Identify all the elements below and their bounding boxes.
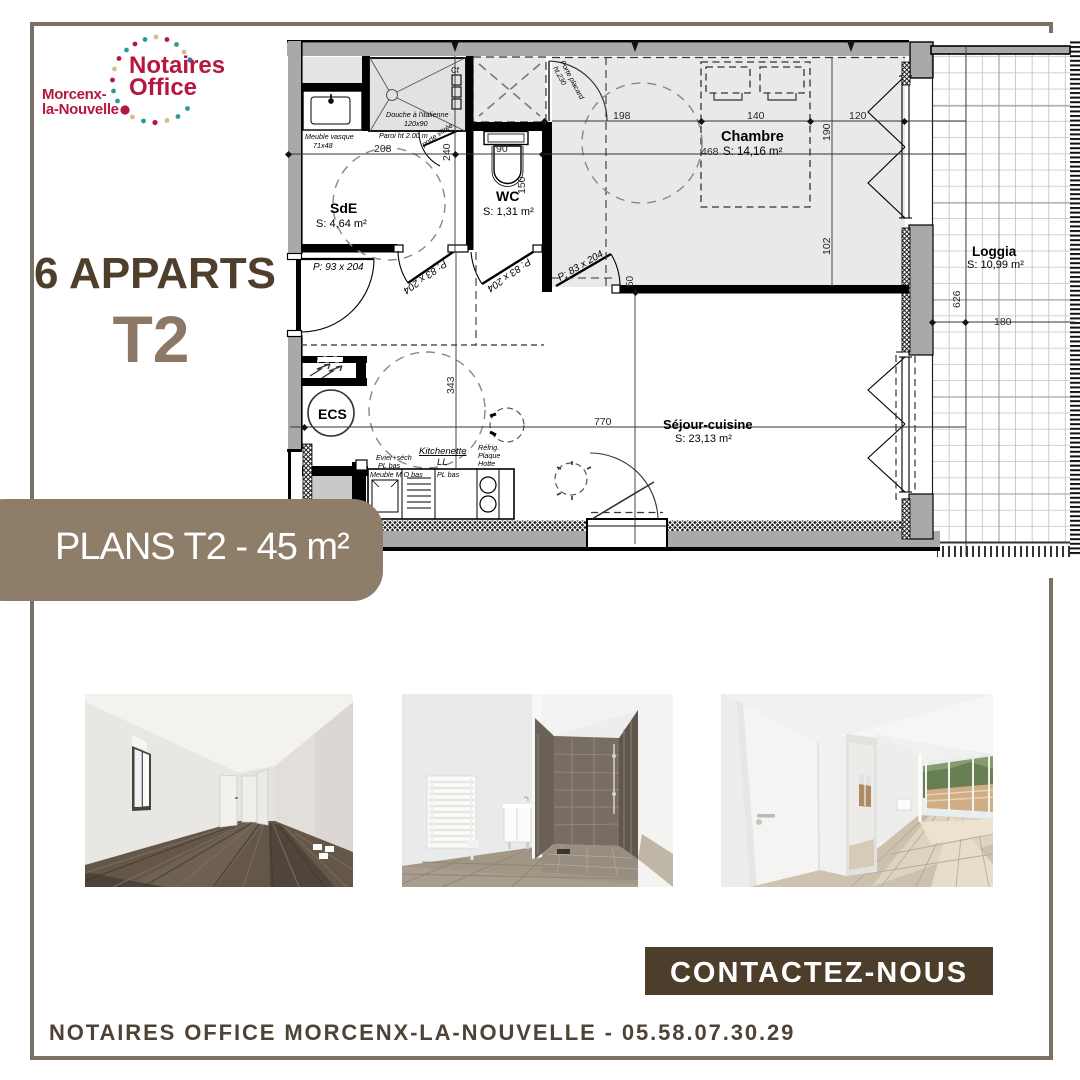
svg-text:S: 23,13 m²: S: 23,13 m² — [675, 433, 732, 445]
svg-text:PL bas: PL bas — [437, 470, 460, 479]
svg-text:770: 770 — [594, 416, 612, 428]
svg-text:Chambre: Chambre — [721, 129, 784, 145]
svg-text:140: 140 — [747, 110, 765, 122]
svg-text:Meuble M.O bas: Meuble M.O bas — [370, 470, 423, 479]
svg-text:343: 343 — [445, 376, 457, 394]
svg-text:102: 102 — [821, 237, 833, 255]
svg-text:S: 1,31 m²: S: 1,31 m² — [483, 206, 534, 218]
svg-text:SdE: SdE — [330, 200, 357, 216]
svg-text:198: 198 — [613, 110, 631, 122]
svg-text:ECS: ECS — [318, 406, 347, 422]
svg-text:Douche à l'italienne: Douche à l'italienne — [386, 110, 449, 119]
svg-text:Loggia: Loggia — [972, 244, 1017, 259]
svg-text:120: 120 — [849, 110, 867, 122]
svg-text:Séjour-cuisine: Séjour-cuisine — [663, 417, 753, 432]
svg-text:180: 180 — [994, 316, 1012, 328]
svg-text:Meuble vasque: Meuble vasque — [305, 132, 354, 141]
svg-text:240: 240 — [441, 143, 453, 161]
svg-text:S: 14,16 m²: S: 14,16 m² — [723, 146, 783, 158]
svg-text:120x90: 120x90 — [404, 119, 428, 128]
svg-text:626: 626 — [951, 290, 963, 308]
svg-text:Hotte: Hotte — [478, 459, 495, 468]
svg-text:50: 50 — [625, 275, 636, 287]
svg-text:71x48: 71x48 — [313, 141, 333, 150]
svg-text:Kitchenette: Kitchenette — [419, 446, 467, 457]
svg-text:S: 10,99 m²: S: 10,99 m² — [967, 259, 1024, 271]
svg-text:P: 93 x 204: P: 93 x 204 — [313, 262, 364, 273]
svg-text:90: 90 — [496, 143, 508, 155]
svg-text:LL: LL — [437, 457, 448, 468]
svg-text:208: 208 — [374, 143, 392, 155]
svg-text:WC: WC — [496, 188, 519, 204]
svg-text:Paroi ht 2.00 m: Paroi ht 2.00 m — [379, 131, 428, 140]
svg-text:PL bas: PL bas — [378, 461, 401, 470]
svg-text:468: 468 — [701, 146, 719, 158]
svg-text:S: 4,64 m²: S: 4,64 m² — [316, 218, 367, 230]
svg-text:190: 190 — [821, 123, 833, 141]
